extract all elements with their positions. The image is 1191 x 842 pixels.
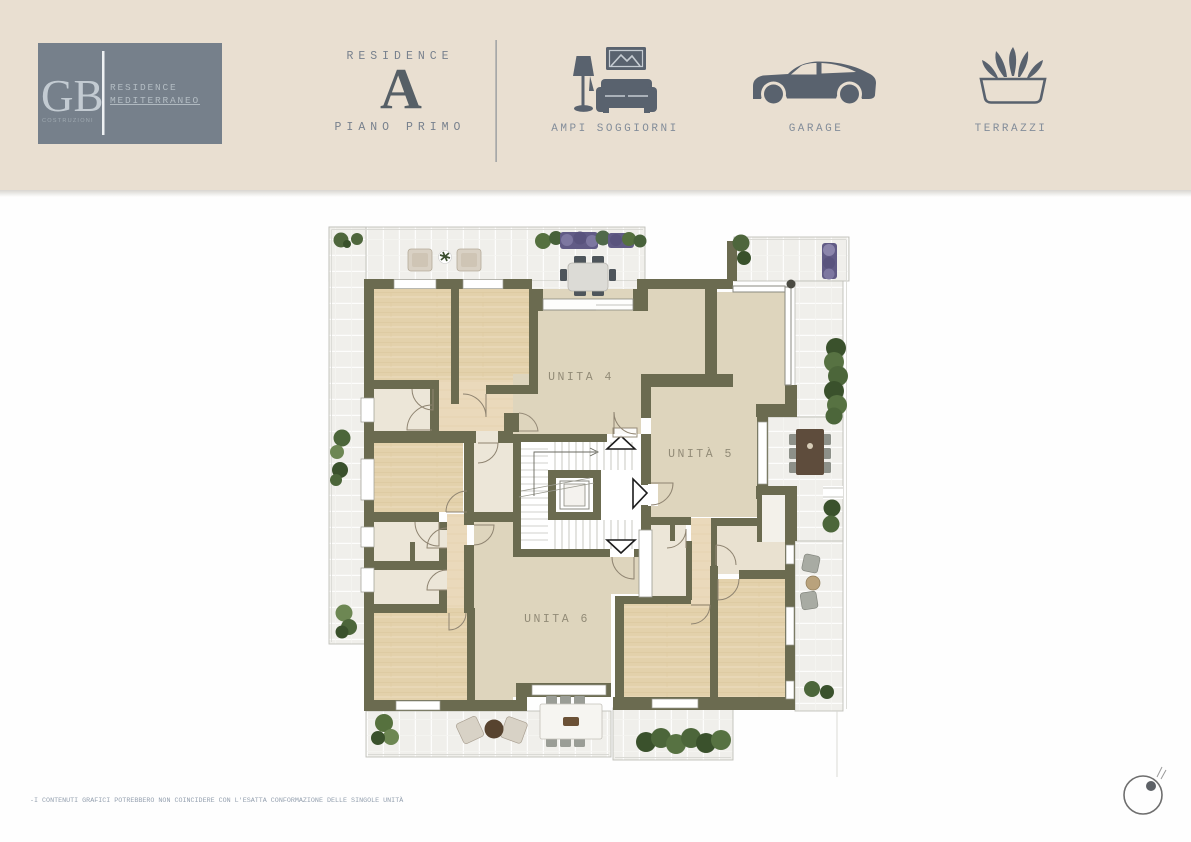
svg-text:UNITÀ 5: UNITÀ 5 bbox=[668, 447, 734, 461]
svg-text:-I CONTENUTI GRAFICI POTREBBER: -I CONTENUTI GRAFICI POTREBBERO NON COIN… bbox=[30, 796, 404, 805]
svg-text:RESIDENCE: RESIDENCE bbox=[110, 82, 178, 93]
svg-text:UNITA 4: UNITA 4 bbox=[548, 371, 614, 384]
svg-text:MEDITERRANEO: MEDITERRANEO bbox=[110, 95, 200, 106]
svg-text:PIANO PRIMO: PIANO PRIMO bbox=[335, 121, 466, 134]
svg-text:GB: GB bbox=[41, 71, 104, 121]
svg-text:AMPI SOGGIORNI: AMPI SOGGIORNI bbox=[551, 123, 678, 135]
svg-text:A: A bbox=[380, 56, 422, 121]
svg-text:GARAGE: GARAGE bbox=[789, 123, 844, 135]
svg-text:TERRAZZI: TERRAZZI bbox=[975, 123, 1048, 135]
svg-text:UNITA 6: UNITA 6 bbox=[524, 613, 590, 626]
svg-text:COSTRUZIONI: COSTRUZIONI bbox=[42, 118, 94, 124]
